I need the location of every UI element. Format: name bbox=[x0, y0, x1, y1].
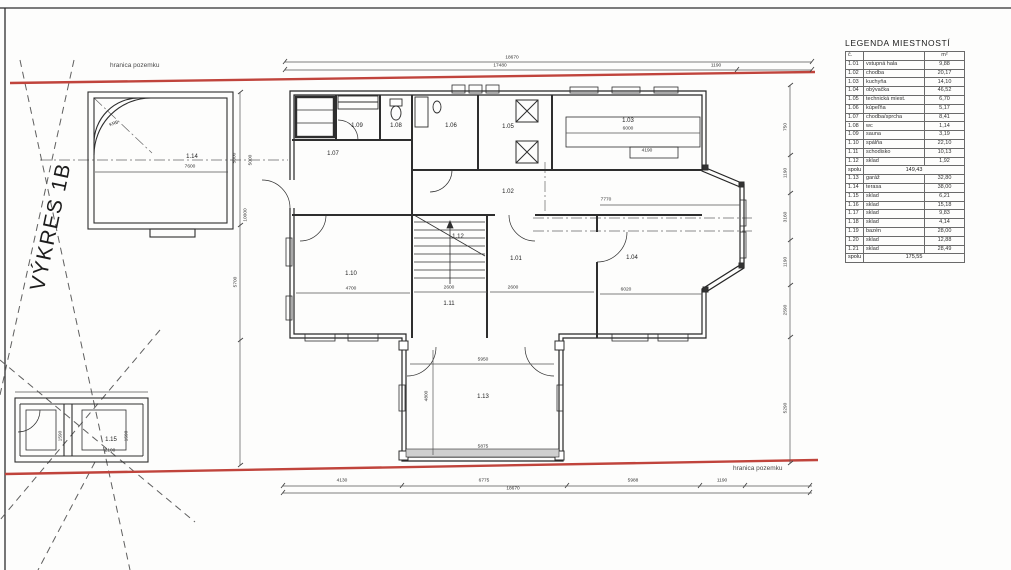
room-label: 1.01 bbox=[510, 256, 522, 262]
legend-cell: 46,52 bbox=[925, 87, 965, 96]
legend-cell: 1.08 bbox=[846, 122, 864, 131]
dim-label: 2100 bbox=[105, 450, 116, 455]
legend-cell: bazén bbox=[864, 227, 925, 236]
dim-label: 7600 bbox=[185, 166, 196, 171]
legend-cell: sauna bbox=[864, 131, 925, 140]
dim-label: 5875 bbox=[478, 446, 489, 451]
dim-label: 7770 bbox=[601, 199, 612, 204]
legend-cell: 1.04 bbox=[846, 87, 864, 96]
legend-cell: 22,10 bbox=[925, 139, 965, 148]
room-label: 1.14 bbox=[186, 154, 198, 160]
dim-label: 10000 bbox=[245, 208, 250, 221]
legend-header-area: m² bbox=[925, 52, 965, 61]
legend-cell: 1,14 bbox=[925, 122, 965, 131]
legend-cell: 1.19 bbox=[846, 227, 864, 236]
legend-cell: 15,18 bbox=[925, 201, 965, 210]
room-label: 1.07 bbox=[327, 151, 339, 157]
room-label: 1.12 bbox=[452, 234, 464, 240]
legend-cell: vstupná hala bbox=[864, 60, 925, 69]
legend-cell: 175,55 bbox=[864, 254, 965, 263]
room-label: 1.11 bbox=[443, 301, 454, 307]
legend-cell: 1.07 bbox=[846, 113, 864, 122]
legend-cell: technická miest. bbox=[864, 95, 925, 104]
legend-cell: sklad bbox=[864, 210, 925, 219]
dim-label: 5988 bbox=[628, 480, 639, 485]
dim-label: 5000 bbox=[250, 155, 255, 166]
legend-cell: garáž bbox=[864, 175, 925, 184]
dim-label: 5950 bbox=[478, 359, 489, 364]
legend-cell: 28,49 bbox=[925, 245, 965, 254]
dim-label: 1590 bbox=[60, 431, 65, 442]
legend-cell: 1.05 bbox=[846, 95, 864, 104]
legend-cell: 9,88 bbox=[925, 60, 965, 69]
legend-cell: 5,17 bbox=[925, 104, 965, 113]
legend-title: LEGENDA MIESTNOSTÍ bbox=[845, 38, 964, 48]
legend-cell: 1.09 bbox=[846, 131, 864, 140]
drawing-sheet: VÝKRES 1B hranica pozemku hranica pozemk… bbox=[0, 0, 1011, 570]
legend-cell: 1.12 bbox=[846, 157, 864, 166]
legend-cell: 28,00 bbox=[925, 227, 965, 236]
legend: LEGENDA MIESTNOSTÍ č. m² 1.01vstupná hal… bbox=[845, 38, 964, 263]
legend-cell: spolu bbox=[846, 166, 864, 175]
legend-cell: 6,70 bbox=[925, 95, 965, 104]
room-label: 1.15 bbox=[105, 437, 117, 443]
room-label: 1.08 bbox=[390, 123, 402, 129]
dim-label: 18670 bbox=[505, 57, 518, 62]
dim-label: 4700 bbox=[346, 288, 357, 293]
legend-table-body: 1.01vstupná hala9,881.02chodba20,171.03k… bbox=[846, 60, 965, 262]
dim-label: 5290 bbox=[785, 403, 790, 414]
legend-cell: sklad bbox=[864, 219, 925, 228]
legend-cell: 38,00 bbox=[925, 183, 965, 192]
legend-cell: kúpeľňa bbox=[864, 104, 925, 113]
legend-cell: 32,80 bbox=[925, 175, 965, 184]
legend-cell: schodisko bbox=[864, 148, 925, 157]
dim-label: 4190 bbox=[642, 150, 653, 155]
dim-label: 17480 bbox=[493, 65, 506, 70]
legend-cell: 1.15 bbox=[846, 192, 864, 201]
legend-cell: sklad bbox=[864, 245, 925, 254]
dim-label: 6000 bbox=[623, 128, 634, 133]
legend-cell: 1,92 bbox=[925, 157, 965, 166]
dim-label: 5700 bbox=[235, 277, 240, 288]
dim-label: 2590 bbox=[785, 305, 790, 316]
legend-cell: 1.17 bbox=[846, 210, 864, 219]
legend-cell: 12,88 bbox=[925, 236, 965, 245]
room-label: 1.10 bbox=[345, 271, 357, 277]
dim-label: 2600 bbox=[508, 287, 519, 292]
legend-cell: 3,19 bbox=[925, 131, 965, 140]
room-label: 1.06 bbox=[445, 123, 457, 129]
dim-label: 6775 bbox=[479, 480, 490, 485]
legend-cell: chodba bbox=[864, 69, 925, 78]
legend-cell: 1.10 bbox=[846, 139, 864, 148]
legend-cell: 1.02 bbox=[846, 69, 864, 78]
dim-label: 750 bbox=[785, 123, 790, 131]
dim-label: 6020 bbox=[621, 289, 632, 294]
dim-label: 4800 bbox=[426, 391, 431, 402]
legend-cell: terasa bbox=[864, 183, 925, 192]
legend-header-no: č. bbox=[846, 52, 864, 61]
legend-cell: obývačka bbox=[864, 87, 925, 96]
room-label: KRB bbox=[109, 120, 119, 127]
legend-cell: 1.01 bbox=[846, 60, 864, 69]
legend-cell: 20,17 bbox=[925, 69, 965, 78]
legend-cell: 1.13 bbox=[846, 175, 864, 184]
dim-label: 1190 bbox=[785, 257, 790, 267]
legend-cell: 1.16 bbox=[846, 201, 864, 210]
legend-cell: kuchyňa bbox=[864, 78, 925, 87]
room-label: 1.04 bbox=[626, 255, 638, 261]
legend-cell: 14,10 bbox=[925, 78, 965, 87]
dim-label: 5000 bbox=[234, 153, 239, 164]
dim-label: 1190 bbox=[785, 168, 790, 178]
legend-cell: 8,41 bbox=[925, 113, 965, 122]
legend-cell: 1.11 bbox=[846, 148, 864, 157]
dim-label: 1190 bbox=[717, 480, 727, 485]
dim-label: 2600 bbox=[444, 287, 455, 292]
room-label: 1.05 bbox=[502, 124, 514, 130]
legend-cell: sklad bbox=[864, 157, 925, 166]
legend-cell: 1.03 bbox=[846, 78, 864, 87]
dim-label: 18670 bbox=[506, 488, 519, 493]
legend-cell: 1.06 bbox=[846, 104, 864, 113]
legend-cell: 1.14 bbox=[846, 183, 864, 192]
room-label: 1.03 bbox=[622, 118, 634, 124]
legend-cell: sklad bbox=[864, 201, 925, 210]
legend-cell: 10,13 bbox=[925, 148, 965, 157]
legend-table: č. m² 1.01vstupná hala9,881.02chodba20,1… bbox=[845, 51, 965, 263]
dim-label: 4130 bbox=[337, 480, 348, 485]
legend-cell: sklad bbox=[864, 236, 925, 245]
legend-cell: spolu bbox=[846, 254, 864, 263]
dim-label: 3160 bbox=[785, 212, 790, 223]
room-label: 1.02 bbox=[502, 189, 514, 195]
legend-cell: wc bbox=[864, 122, 925, 131]
room-label: 1.13 bbox=[477, 394, 489, 400]
legend-header-name bbox=[864, 52, 925, 61]
legend-cell: 1.20 bbox=[846, 236, 864, 245]
legend-cell: 1.18 bbox=[846, 219, 864, 228]
room-label: 1.09 bbox=[351, 123, 363, 129]
legend-cell: sklad bbox=[864, 192, 925, 201]
legend-cell: 6,21 bbox=[925, 192, 965, 201]
legend-cell: 9,83 bbox=[925, 210, 965, 219]
dim-label: 1190 bbox=[711, 65, 721, 70]
legend-cell: 4,14 bbox=[925, 219, 965, 228]
legend-cell: chodba/sprcha bbox=[864, 113, 925, 122]
legend-cell: 149,43 bbox=[864, 166, 965, 175]
dim-label: 1590 bbox=[126, 431, 131, 442]
legend-cell: spálňa bbox=[864, 139, 925, 148]
legend-cell: 1.21 bbox=[846, 245, 864, 254]
